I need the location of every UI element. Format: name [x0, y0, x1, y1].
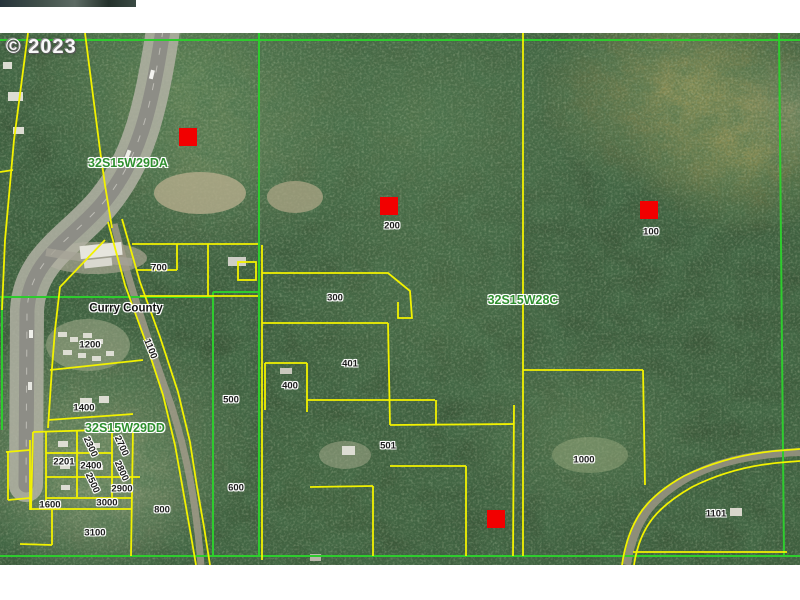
selected-parcel-marker-1[interactable] [179, 128, 197, 146]
selected-parcel-marker-2[interactable] [380, 197, 398, 215]
map-edge-sliver [0, 0, 136, 7]
map-overlay [0, 33, 800, 565]
parcel-map-viewer: Curry County 32S15W29DA32S15W28C32S15W29… [0, 0, 800, 600]
selected-parcel-marker-3[interactable] [640, 201, 658, 219]
map-canvas[interactable]: Curry County 32S15W29DA32S15W28C32S15W29… [0, 33, 800, 565]
selected-parcel-marker-4[interactable] [487, 510, 505, 528]
copyright-watermark: © 2023 [6, 36, 77, 59]
